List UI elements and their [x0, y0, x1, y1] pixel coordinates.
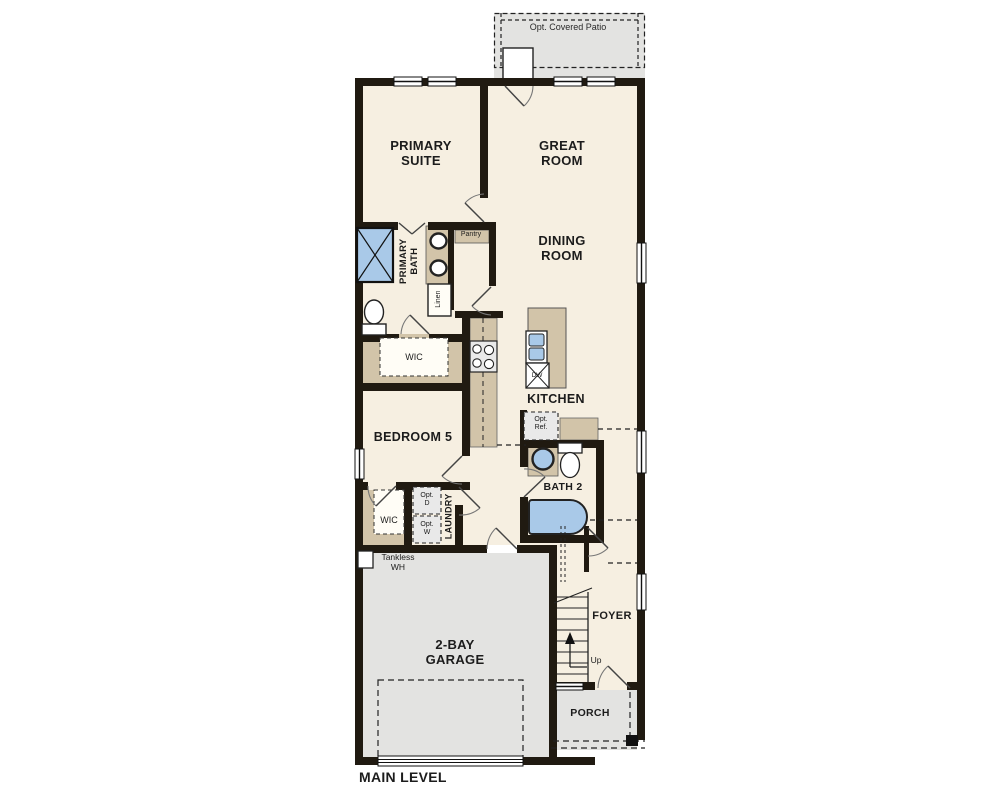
room-label-kitchen: KITCHEN [511, 392, 601, 407]
vanity-sink-icon [431, 234, 447, 249]
porch-post [626, 735, 638, 746]
room-label-wic-bedroom5: WIC [369, 515, 409, 526]
room-label-garage: 2-BAY GARAGE [415, 637, 495, 668]
room-label-linen: Linen [435, 284, 443, 314]
window-icon [587, 77, 615, 86]
room-label-bedroom5: BEDROOM 5 [358, 430, 468, 445]
bathtub-icon [529, 500, 587, 534]
drop-zone-counter [560, 418, 598, 440]
room-label-wic-primary: WIC [394, 352, 434, 363]
garage-door-icon [378, 756, 523, 766]
room-label-great-room: GREAT ROOM [527, 138, 597, 169]
primary-toilet-icon [362, 300, 386, 335]
window-icon [355, 449, 364, 479]
range-icon [470, 341, 497, 372]
label-opt-dryer: Opt. D [417, 492, 437, 509]
room-label-porch: PORCH [560, 707, 620, 719]
window-icon [637, 574, 646, 610]
label-stairs-up: Up [584, 655, 608, 665]
room-label-laundry: LAUNDRY [444, 488, 455, 544]
wic2-shelving [374, 490, 404, 534]
window-icon [637, 431, 646, 473]
label-opt-ref: Opt. Ref. [530, 416, 552, 433]
patio-door-landing [503, 48, 533, 79]
window-icon [428, 77, 456, 86]
floor-plan-page: Opt. Covered Patio PRIMARY SUITE GREAT R… [0, 0, 1000, 800]
label-tankless-wh: Tankless WH [374, 552, 422, 572]
room-label-pantry: Pantry [451, 231, 491, 239]
island-sink-icon [526, 331, 547, 363]
label-dishwasher: DW [525, 372, 549, 380]
plan-title: MAIN LEVEL [359, 769, 559, 786]
bath2-toilet-icon [558, 443, 582, 478]
label-opt-washer: Opt. W [417, 521, 437, 538]
primary-shower-icon [357, 228, 393, 282]
vanity-sink-icon [431, 261, 447, 276]
room-label-bath2: BATH 2 [528, 481, 598, 493]
room-label-dining-room: DINING ROOM [527, 233, 597, 264]
window-icon [554, 77, 582, 86]
tankless-wh-icon [358, 551, 373, 568]
floor-plan-drawing [0, 0, 1000, 800]
window-icon [556, 683, 583, 690]
room-label-primary-suite: PRIMARY SUITE [381, 138, 461, 169]
window-icon [637, 243, 646, 283]
room-label-primary-bath: PRIMARY BATH [398, 228, 420, 294]
room-label-patio: Opt. Covered Patio [498, 22, 638, 33]
window-icon [394, 77, 422, 86]
room-label-foyer: FOYER [582, 610, 642, 623]
bath2-sink-icon [533, 449, 554, 470]
